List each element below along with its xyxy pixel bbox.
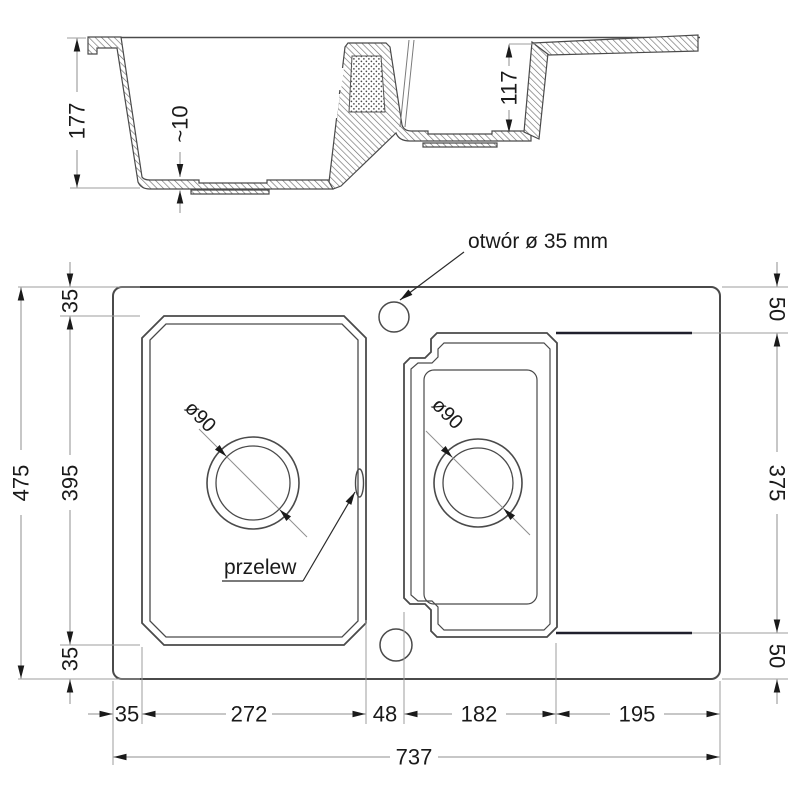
faucet-hole-bottom: [380, 629, 412, 661]
dim-depth-main-bowl: 177: [65, 103, 90, 140]
small-drain-dia-b: [504, 509, 531, 536]
extension-lines: [18, 287, 788, 765]
section-main-drain-strip: [191, 190, 269, 194]
main-bowl-outer-rim: [142, 316, 366, 645]
small-bowl-corner-edge-1: [400, 40, 409, 127]
small-drain-dia-a: [426, 431, 453, 458]
dim-right-small-bowl-zone: 375: [765, 465, 790, 502]
dim-width-left-margin: 35: [115, 702, 139, 727]
plan-view: ø90 przelew ø90 otwór ø 35 mm: [9, 230, 790, 770]
dim-height-total: 475: [9, 465, 34, 502]
section-small-bowl-right-wall: [524, 42, 548, 139]
section-main-bowl-wall: [88, 37, 333, 189]
dim-height-top-margin: 35: [58, 289, 83, 313]
faucet-hole-top: [379, 302, 409, 332]
faucet-hole-label: otwór ø 35 mm: [468, 230, 608, 253]
section-small-drain-strip: [423, 143, 497, 147]
dim-width-main-bowl: 272: [231, 702, 268, 727]
main-bowl-inner-rim: [150, 324, 358, 637]
dim-width-divider: 48: [373, 702, 397, 727]
dim-right-top-margin: 50: [765, 297, 790, 321]
overflow-slot: [356, 469, 364, 497]
dim-right-bottom-margin: 50: [765, 644, 790, 668]
dim-width-small-bowl: 182: [461, 702, 498, 727]
dim-depth-small-bowl: 117: [497, 70, 522, 105]
dim-width-drainboard: 195: [619, 702, 656, 727]
sink-technical-drawing: 177 ~10 117 ø90 przelew: [0, 0, 800, 800]
dim-height-main-bowl: 395: [58, 465, 83, 502]
dim-bottom-thickness: ~10: [168, 105, 193, 142]
dim-height-bottom-margin: 35: [58, 647, 83, 671]
small-bowl-inner-rim: [411, 343, 550, 630]
overflow-leader: [303, 492, 355, 581]
dim-width-total: 737: [396, 745, 433, 770]
small-drain-dia-mid: [453, 458, 503, 508]
main-drain-dia-mid: [227, 457, 279, 509]
cross-section-view: 177 ~10 117: [65, 35, 701, 213]
small-drain-diameter-label: ø90: [427, 394, 467, 434]
sink-outer-outline: [113, 287, 720, 679]
main-drain-diameter-label: ø90: [180, 397, 220, 437]
section-divider-core: [349, 56, 385, 112]
faucet-hole-leader: [400, 252, 464, 300]
overflow-label: przelew: [224, 556, 297, 579]
main-drain-dia-b: [280, 510, 308, 538]
small-bowl-corner-edge-2: [405, 40, 414, 127]
